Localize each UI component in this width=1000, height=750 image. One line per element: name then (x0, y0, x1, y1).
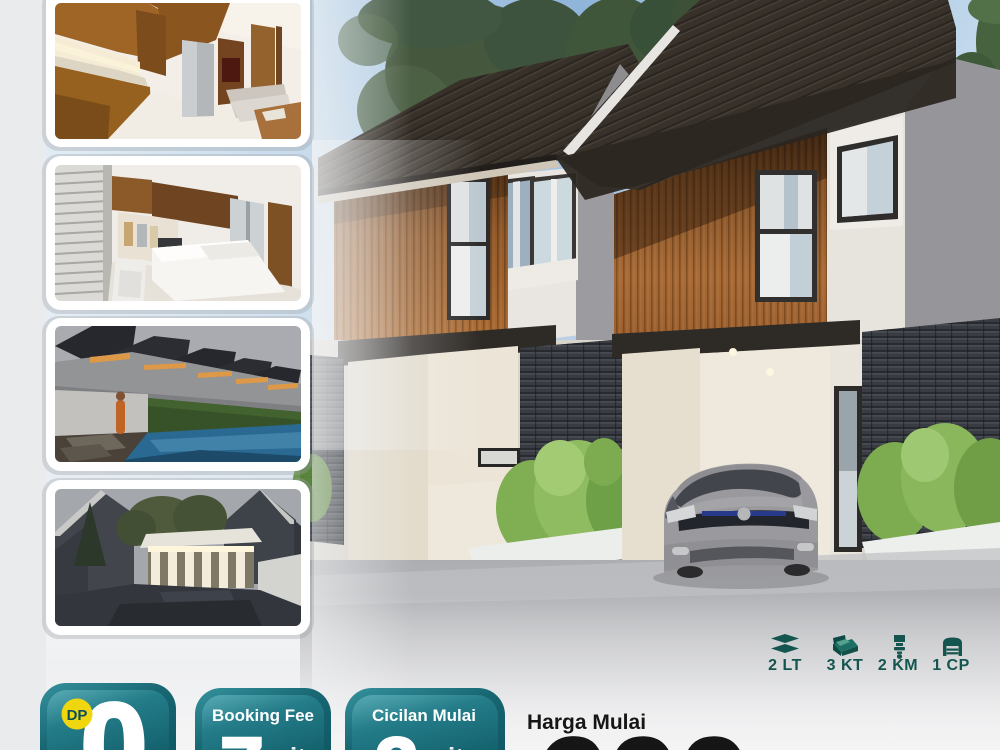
svg-text:jt: jt (447, 742, 464, 750)
svg-text:2 KM: 2 KM (878, 657, 918, 674)
svg-text:2 LT: 2 LT (768, 657, 802, 674)
svg-text:3: 3 (375, 721, 418, 750)
svg-text:600: 600 (536, 713, 750, 750)
svg-text:1 CP: 1 CP (932, 657, 970, 674)
svg-text:jt: jt (289, 742, 306, 750)
svg-text:7: 7 (220, 721, 263, 750)
svg-text:DP: DP (67, 707, 88, 724)
svg-text:3 KT: 3 KT (827, 657, 864, 674)
